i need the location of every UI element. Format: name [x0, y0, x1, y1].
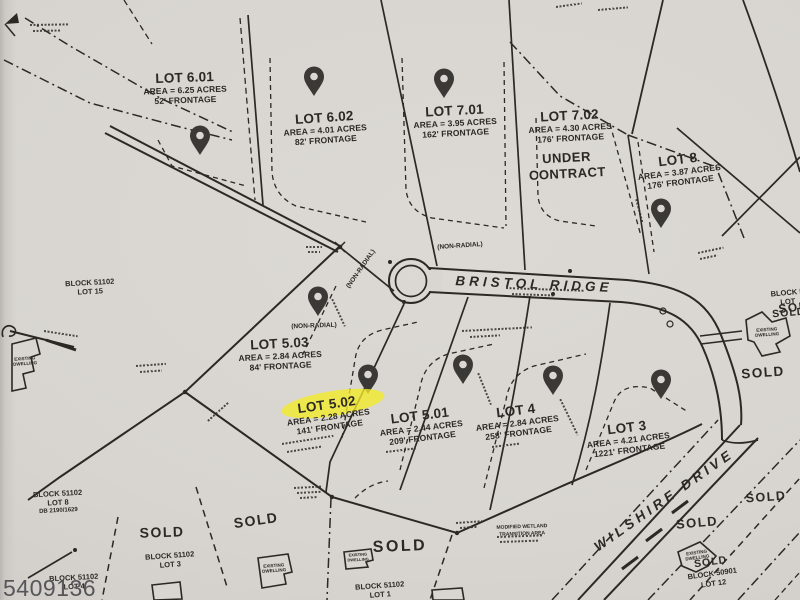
- illegible-annotation: [308, 251, 320, 253]
- parcel-label-block51102-lot15: BLOCK 51102 LOT 15: [65, 277, 115, 298]
- boundary-line: [632, 0, 663, 134]
- survey-point: [455, 531, 459, 535]
- road-opening: [428, 270, 442, 292]
- parcel-label-right-edge: BLOCK 5 LOT SOLD: [770, 287, 800, 322]
- lot-line: [400, 297, 468, 490]
- utility-marker: [667, 321, 673, 327]
- lot-label-6-02: LOT 6.02 AREA = 4.01 ACRES 82' FRONTAGE: [282, 107, 368, 148]
- photo-id-watermark: 5409136: [3, 575, 96, 600]
- map-pin-lot-4[interactable]: [543, 366, 563, 396]
- existing-dwelling-label: EXISTING DWELLING: [10, 355, 41, 367]
- driveway: [46, 340, 76, 350]
- lot-label-5-03: LOT 5.03 AREA = 2.84 ACRES 84' FRONTAGE: [237, 334, 322, 373]
- map-pin-lot-6-02[interactable]: [304, 67, 324, 97]
- road-edge-bristol: [429, 292, 722, 440]
- existing-dwelling-outline: [152, 582, 182, 600]
- lot-line: [102, 517, 118, 600]
- corner-marker: [5, 13, 19, 24]
- map-pin-lot-5-03[interactable]: [308, 287, 328, 317]
- wetland-note: MODIFIED WETLAND TRANSITION AREA: [496, 523, 547, 538]
- survey-point: [73, 548, 77, 552]
- parcel-label-block51102-lot8: BLOCK 51102 LOT 8 DB 2190/1629: [33, 488, 84, 517]
- row-line: [775, 572, 800, 600]
- survey-point: [402, 300, 406, 304]
- plat-linework: [0, 0, 800, 600]
- lot-7-02-status: UNDER CONTRACT: [525, 148, 609, 185]
- survey-point: [388, 260, 392, 264]
- lot-line: [509, 0, 525, 270]
- illegible-annotation: [306, 246, 322, 248]
- lot-line: [248, 15, 263, 205]
- setback-line: [355, 481, 388, 498]
- existing-dwelling-outline: [432, 588, 464, 600]
- cul-de-sac-inner: [396, 266, 427, 297]
- boundary-line: [743, 0, 800, 172]
- boundary-line: [105, 133, 338, 252]
- survey-point: [568, 269, 572, 273]
- corner-marker: [5, 24, 15, 36]
- row-line: [738, 532, 800, 600]
- lot-label-6-01: LOT 6.01 AREA = 6.25 ACRES 52' FRONTAGE: [143, 69, 228, 107]
- sold-label: SOLD: [372, 537, 427, 557]
- existing-dwelling-label: EXISTING DWELLING: [752, 326, 783, 338]
- map-pin-lot-7-01[interactable]: [434, 69, 454, 99]
- sold-label: SOLD: [745, 489, 787, 506]
- boundary-line: [722, 157, 800, 236]
- lot-label-7-02: LOT 7.02 AREA = 4.30 ACRES 176' FRONTAGE: [527, 106, 612, 145]
- existing-dwelling-label: EXISTING DWELLING: [259, 562, 290, 574]
- lot-line: [196, 487, 228, 590]
- existing-dwelling-label: EXISTING DWELLING: [343, 552, 373, 563]
- sold-label: SOLD: [139, 523, 184, 541]
- lot-label-7-01: LOT 7.01 AREA = 3.95 ACRES 162' FRONTAGE: [412, 101, 497, 140]
- sold-label: SOLD: [741, 364, 785, 382]
- map-pin-lot-8[interactable]: [651, 199, 671, 229]
- lot-line: [327, 498, 331, 600]
- plat-map-photo: LOT 6.01 AREA = 6.25 ACRES 52' FRONTAGE …: [0, 0, 800, 600]
- boundary-line: [124, 0, 152, 44]
- setback-line: [504, 62, 506, 226]
- parcel-label-block51102-lot1: BLOCK 51102 LOT 1: [355, 579, 405, 600]
- setback-line: [402, 58, 504, 228]
- illegible-annotation: [33, 30, 61, 33]
- setback-line: [610, 124, 641, 236]
- map-pin-lot-6-01[interactable]: [190, 126, 210, 156]
- map-pin-lot-5-01[interactable]: [453, 355, 473, 385]
- map-pin-lot-3[interactable]: [651, 370, 671, 400]
- sold-label: SOLD: [772, 305, 800, 321]
- lot-line: [240, 18, 255, 200]
- parcel-label-block51102-lot3: BLOCK 51102 LOT 3: [145, 549, 195, 571]
